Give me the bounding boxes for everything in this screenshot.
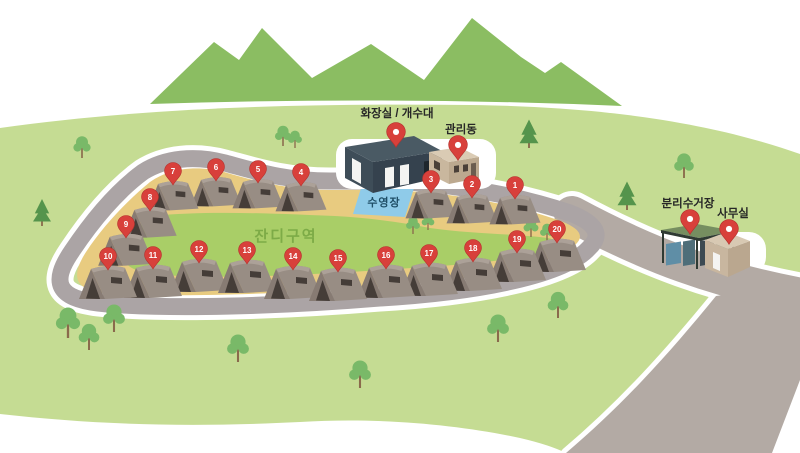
svg-text:2: 2 — [470, 180, 475, 189]
door — [385, 167, 394, 188]
campground-map-page: 잔디구역 수영장 — [0, 0, 800, 453]
campground-map-illustration: 잔디구역 수영장 — [0, 0, 800, 453]
svg-text:10: 10 — [104, 252, 113, 261]
window — [463, 164, 468, 172]
facility-label-admin: 관리동 — [445, 122, 477, 136]
svg-text:6: 6 — [214, 163, 219, 172]
door — [400, 164, 409, 186]
door — [713, 252, 720, 271]
svg-text:8: 8 — [148, 193, 153, 202]
svg-text:4: 4 — [299, 168, 304, 177]
recycle-bin — [666, 242, 681, 266]
recycle-bin — [683, 240, 695, 267]
pool-label: 수영장 — [367, 195, 400, 209]
svg-text:9: 9 — [124, 220, 129, 229]
svg-text:20: 20 — [553, 225, 562, 234]
facility-label-recycling: 분리수거장 — [662, 196, 715, 210]
svg-text:18: 18 — [469, 244, 478, 253]
svg-text:3: 3 — [429, 175, 434, 184]
svg-text:7: 7 — [171, 167, 176, 176]
svg-text:14: 14 — [289, 252, 298, 261]
svg-text:13: 13 — [243, 246, 252, 255]
svg-text:17: 17 — [425, 249, 434, 258]
svg-text:1: 1 — [513, 181, 518, 190]
svg-text:5: 5 — [256, 165, 261, 174]
svg-text:12: 12 — [195, 245, 204, 254]
grass-zone-label: 잔디구역 — [254, 228, 317, 245]
facility-label-toilet: 화장실 / 개수대 — [360, 106, 433, 120]
svg-text:15: 15 — [334, 254, 343, 263]
svg-text:16: 16 — [382, 251, 391, 260]
svg-text:19: 19 — [513, 235, 522, 244]
svg-text:11: 11 — [149, 251, 158, 260]
facility-label-office: 사무실 — [717, 206, 749, 220]
window — [454, 165, 459, 172]
